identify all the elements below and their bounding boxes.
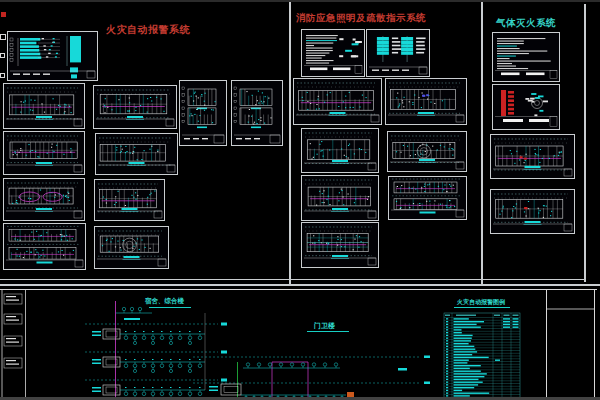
sheet-el-plan-5 bbox=[301, 175, 379, 221]
legend-title-underline bbox=[454, 307, 510, 308]
sheet-el-plan-7 bbox=[301, 222, 379, 268]
legend-title: 火灾自动报警图例 bbox=[457, 298, 505, 307]
sheet-el-plan-2 bbox=[385, 78, 467, 125]
divider-left-middle bbox=[289, 0, 291, 284]
sheet-el-plan-4 bbox=[387, 131, 467, 172]
edge-fragment bbox=[0, 73, 5, 78]
edge-fragment bbox=[0, 34, 6, 40]
sheet-fa-plan-2 bbox=[3, 131, 85, 175]
sheet-el-plan-6 bbox=[388, 176, 467, 220]
sheet-fa-plan-4 bbox=[3, 223, 86, 270]
sheet-gas-plan-2 bbox=[490, 189, 575, 234]
sheet-gas-detail bbox=[492, 84, 560, 130]
sheet-el-plan-3 bbox=[301, 128, 379, 173]
group-title-gas-suppression: 气体灭火系统 bbox=[496, 17, 556, 30]
sheet-fa-plan-6 bbox=[95, 133, 178, 175]
sheet-el-notes bbox=[301, 29, 365, 77]
sheet-el-system-riser bbox=[366, 29, 430, 77]
red-layout-marker bbox=[1, 12, 6, 17]
divider-middle-right bbox=[481, 0, 483, 284]
group-title-emergency-lighting: 消防应急照明及疏散指示系统 bbox=[296, 12, 426, 25]
sheet-fa-plan-5 bbox=[93, 85, 177, 129]
sheet-el-plan-1 bbox=[293, 78, 382, 125]
riser-title-left-underline bbox=[149, 307, 191, 308]
edge-fragment bbox=[0, 53, 5, 58]
group-title-fire-alarm: 火灾自动报警系统 bbox=[106, 23, 190, 37]
top-edge-strip bbox=[0, 0, 600, 2]
sheet-fa-portrait-1 bbox=[179, 80, 227, 146]
sheet-fa-plan-3 bbox=[3, 178, 85, 221]
sheet-fa-system-riser bbox=[7, 31, 98, 81]
sheet-gas-plan-1 bbox=[490, 134, 575, 179]
sheet-fa-plan-8 bbox=[94, 226, 169, 269]
riser-title-left: 宿舍、综合楼 bbox=[145, 297, 184, 306]
riser-title-right: 门卫楼 bbox=[314, 321, 335, 331]
cad-workspace: 火灾自动报警系统 消防应急照明及疏散指示系统 气体灭火系统 宿舍、综合楼 门卫楼… bbox=[0, 0, 600, 400]
groups-bottom-border bbox=[0, 279, 584, 280]
divider-right-edge bbox=[584, 4, 586, 282]
sheet-fa-plan-1 bbox=[3, 83, 85, 129]
sheet-fa-plan-7 bbox=[94, 179, 165, 221]
sheet-fa-portrait-2 bbox=[231, 80, 283, 146]
section-separator bbox=[0, 284, 600, 286]
riser-title-right-underline bbox=[307, 331, 349, 332]
sheet-gas-notes bbox=[492, 32, 560, 82]
bottom-system-sheet bbox=[0, 289, 600, 400]
